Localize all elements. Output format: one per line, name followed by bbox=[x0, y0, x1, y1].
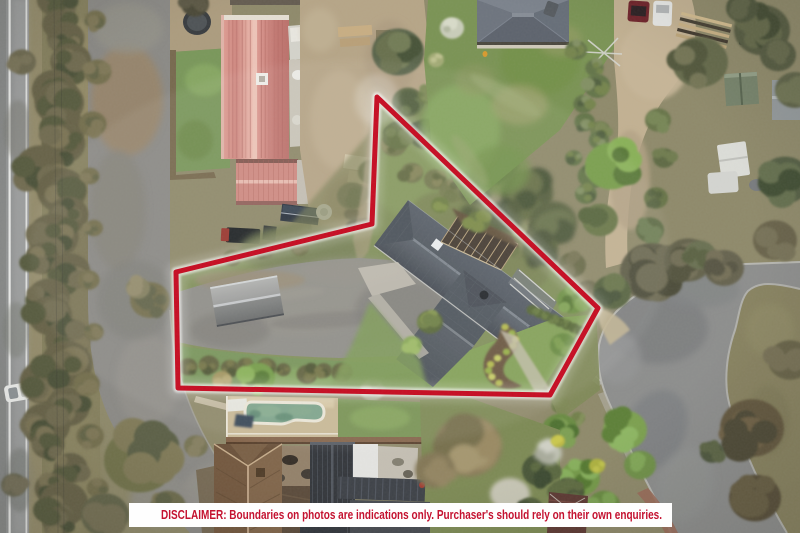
svg-text:DISCLAIMER: Boundaries on phot: DISCLAIMER: Boundaries on photos are ind… bbox=[161, 507, 662, 522]
